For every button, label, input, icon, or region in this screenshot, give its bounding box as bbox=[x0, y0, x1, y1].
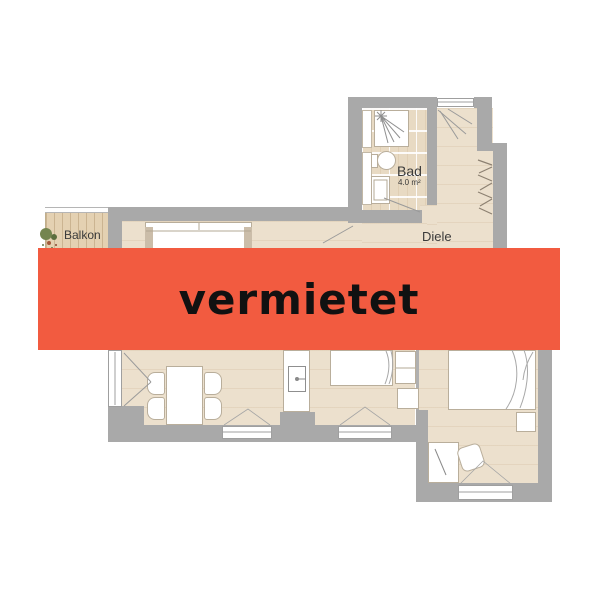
shower-icon bbox=[374, 110, 409, 147]
wall bbox=[477, 97, 492, 149]
washbasin-icon bbox=[371, 176, 390, 204]
wall bbox=[348, 97, 362, 223]
bath-label: Bad bbox=[397, 163, 422, 179]
balcony-door-window bbox=[108, 350, 122, 407]
nightstand bbox=[395, 351, 416, 384]
entrance-door bbox=[437, 98, 474, 107]
balcony-railing bbox=[45, 207, 108, 213]
floor-plan: Balkon Bad 4.0 m² Di bbox=[0, 0, 600, 600]
rented-banner: vermietet bbox=[38, 248, 560, 350]
bedroom-2-window bbox=[458, 485, 513, 500]
wall-bath-partition bbox=[427, 108, 437, 205]
side-table bbox=[397, 388, 419, 409]
wall bbox=[416, 410, 428, 485]
toilet-icon bbox=[377, 151, 396, 170]
wall bbox=[493, 143, 507, 250]
wall bbox=[538, 350, 552, 502]
bed bbox=[448, 350, 536, 410]
bedroom-1-window bbox=[338, 426, 392, 439]
wall bbox=[362, 210, 422, 223]
bed bbox=[330, 350, 393, 386]
plant-icon bbox=[40, 228, 52, 240]
dining-window bbox=[222, 426, 272, 439]
chair bbox=[204, 372, 222, 395]
sofa-armrest bbox=[145, 227, 153, 248]
sofa bbox=[145, 222, 252, 248]
wall bbox=[108, 406, 144, 442]
chair bbox=[147, 372, 165, 395]
balcony-label: Balkon bbox=[64, 228, 101, 242]
shower-side-panel bbox=[362, 110, 372, 148]
desk bbox=[428, 442, 459, 483]
wall bbox=[108, 207, 362, 221]
bath-area-label: 4.0 m² bbox=[398, 178, 421, 187]
kitchen-sink-icon bbox=[288, 366, 306, 392]
living-hall-floor bbox=[362, 223, 427, 250]
sofa-armrest bbox=[244, 227, 252, 248]
rented-banner-label: vermietet bbox=[179, 275, 420, 324]
hallway-label: Diele bbox=[422, 229, 452, 244]
nightstand bbox=[516, 412, 536, 432]
chair bbox=[204, 397, 222, 420]
chair bbox=[147, 397, 165, 420]
dining-table bbox=[166, 366, 203, 425]
